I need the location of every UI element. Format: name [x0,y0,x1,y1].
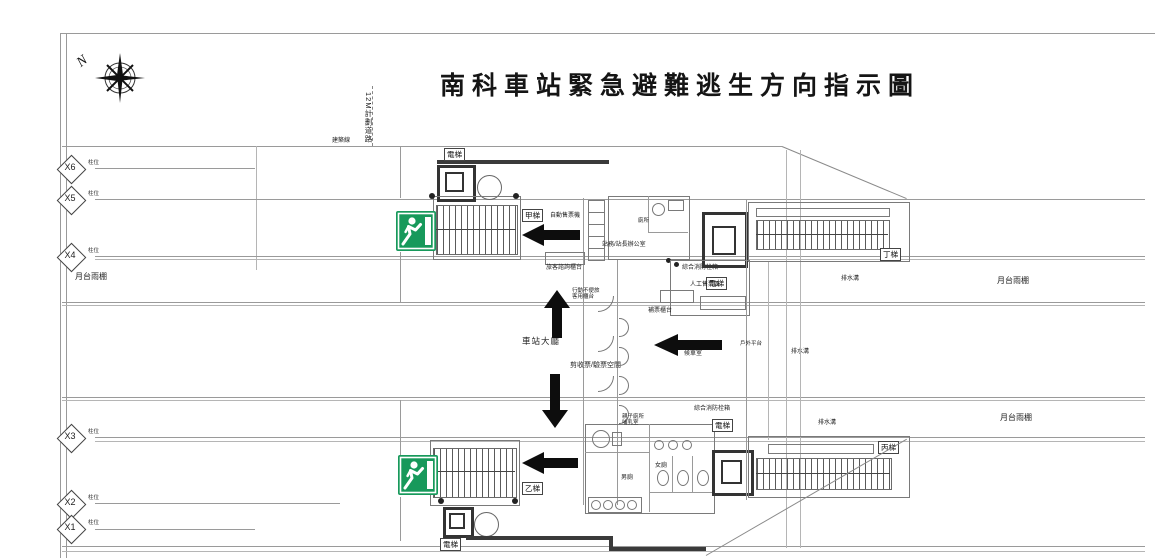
grid-line-x2 [95,503,340,504]
toilet-fixture-2 [677,470,689,486]
elevator-label-lower-left: 電梯 [440,538,461,551]
building-wall-bottom-1 [466,536,612,540]
accessible-counter-label: 行動不便旅客用櫃台 [572,288,604,301]
ticket-machine-5 [588,248,605,261]
building-wall-west-lower [400,400,401,456]
grid-line-x6 [95,168,255,169]
sheet-frame-left-inner [66,33,67,558]
stair-b-handrail [433,471,515,472]
stair-a-handrail [436,229,516,230]
grid-line-x1 [95,529,255,530]
queue-gate-1 [619,318,629,337]
family-toilet-label: 親子廁所哺乳室 [622,414,648,427]
stair-c-handrail [756,473,890,474]
road-centerline [372,86,373,146]
gate-space-label: 剪收票/驗票空間 [570,362,621,370]
stair-a-label: 甲梯 [522,209,543,222]
stall-divider-2 [692,456,693,492]
gate-swing-arc-3 [598,376,614,392]
track-line-2 [62,397,1145,398]
site-outline-left [256,146,257,270]
platform-canopy-label-right-upper: 月台雨棚 [997,276,1029,285]
toilet-fixture-1 [657,470,669,486]
elevator-car-upper-right [712,226,736,255]
building-wall-west-mid [400,252,401,302]
office-sink [668,200,684,211]
exit-sign-icon-lower [398,455,438,495]
accessible-toilet-fixture [592,430,610,448]
compass-rose-icon [94,52,146,104]
ticket-machines-label: 自動售票機 [550,213,580,220]
evacuation-arrow-left-mid [652,332,724,358]
drainage-label-upper: 排水溝 [841,276,859,283]
grid-marker-x2-note: 柱位 [88,493,99,501]
grid-marker-x1-label: X1 [57,522,83,532]
outdoor-platform-label: 戶外平台 [740,341,762,347]
stair-a-newel-left [429,193,435,199]
stair-b-newel-right [512,498,518,504]
info-counter [545,252,585,265]
office-toilet-label: 廁所 [638,218,652,224]
building-line [62,146,782,147]
fare-adjustment-counter [660,290,694,303]
toilet-partition-v [649,424,650,512]
sink-4 [627,500,637,510]
building-wall-west-bottom [400,497,401,541]
drainage-label-lower: 排水溝 [818,420,836,427]
stall-divider-1 [672,456,673,492]
elevator-car-lower-right [721,460,742,484]
stair-d-label: 丁梯 [880,248,901,261]
sink-1 [591,500,601,510]
stair-d-handrail [756,234,888,235]
toilet-partition-h2 [649,492,713,493]
stair-b-treads [433,448,517,498]
ticket-counter [700,296,746,310]
toilet-sink-1 [612,432,622,446]
exit-sign-icon-upper [396,211,436,251]
stair-d-treads [756,220,890,250]
grid-marker-x4-note: 柱位 [88,246,99,254]
outdoor-platform-edge [768,262,769,440]
urinal-2 [668,440,678,450]
evacuation-floor-plan: 南科車站緊急避難逃生方向指示圖 N 12M計劃道路 建築線 X6 柱位 X5 柱… [0,0,1169,558]
grid-marker-x1-note: 柱位 [88,518,99,526]
queue-gate-3 [619,376,629,395]
building-wall-bottom-2 [610,547,706,551]
office-partition-v [648,196,649,232]
building-wall-west-upper [400,146,401,198]
office-partition-h [648,232,688,233]
sink-2 [603,500,613,510]
sheet-frame-top [60,33,1155,34]
elevator-label-upper-left: 電梯 [444,148,465,161]
grid-marker-x2-label: X2 [57,497,83,507]
stair-a-treads [436,205,518,255]
toilet-partition-h1 [585,452,649,453]
stair-b-newel-left [438,498,444,504]
evacuation-arrow-down [540,372,570,430]
elevator-label-lower-right: 電梯 [712,419,733,432]
stair-b-label: 乙梯 [522,482,543,495]
evacuation-arrow-left-lower [520,450,580,476]
column-circle-lower [474,512,499,537]
page-title: 南科車站緊急避難逃生方向指示圖 [440,66,920,102]
stair-d-landing [756,208,890,217]
urinal-1 [654,440,664,450]
elevator-car-upper-left [445,172,464,192]
queue-gate-2 [619,347,629,366]
grid-marker-x4-label: X4 [57,250,83,260]
info-counter-label: 旅客諮詢櫃台 [546,265,582,272]
track-line-2b [62,400,1145,401]
evacuation-arrow-up [542,288,572,340]
fire-hydrant-label-lower: 綜合消防栓箱 [694,406,730,413]
grid-marker-x6-label: X6 [57,162,83,172]
platform-canopy-label-right-lower: 月台雨棚 [1000,413,1032,422]
fare-adjustment-label: 補票櫃台 [648,308,672,315]
gate-swing-arc-2 [598,336,614,352]
grid-marker-x6-note: 柱位 [88,158,99,166]
sink-3 [615,500,625,510]
building-line-label: 建築線 [332,138,350,145]
office-toilet-fixture [652,203,665,216]
platform-canopy-label-left: 月台雨棚 [75,272,107,281]
grid-marker-x5-note: 柱位 [88,189,99,197]
north-label: N [74,53,91,71]
nursing-room-text: 哺乳室 [622,420,639,426]
stair-a-newel-right [513,193,519,199]
mens-toilet-label: 男廁 [621,475,633,482]
urinal-3 [682,440,692,450]
grid-marker-x3-label: X3 [57,431,83,441]
stair-c-landing [768,444,874,454]
manual-ticketing-label: 人工售票區 [690,282,720,289]
evacuation-arrow-left-upper [520,222,582,248]
toilet-fixture-3 [697,470,709,486]
sheet-frame-left-outer [60,33,61,558]
grid-marker-x5-label: X5 [57,193,83,203]
grid-marker-x3-note: 柱位 [88,427,99,435]
womens-toilet-label: 女廁 [655,463,667,470]
building-wall-east [746,200,747,500]
station-office-label: 站務/站長辦公室 [602,242,646,249]
track-line-3b [62,551,1145,552]
elevator-car-lower-left [449,513,465,529]
track-line-3 [62,546,1145,547]
gate-corridor-west [583,198,584,505]
